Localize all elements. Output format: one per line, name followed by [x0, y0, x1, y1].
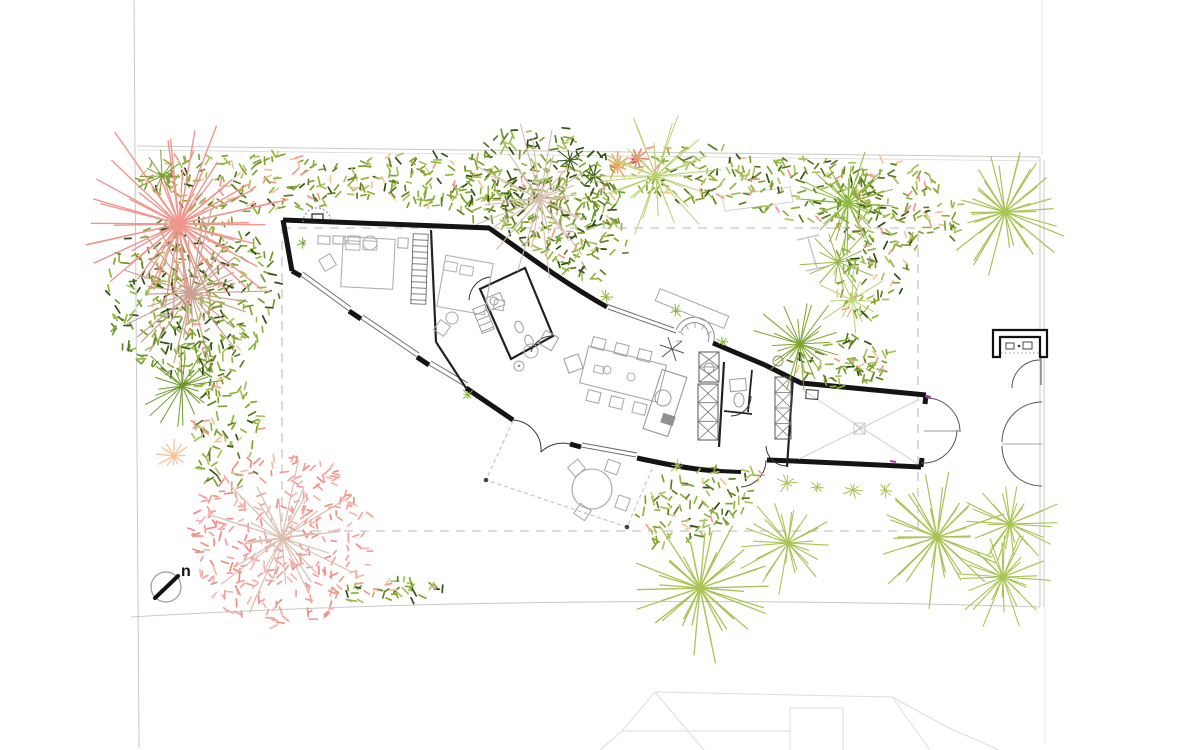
pier-3 [417, 357, 429, 365]
window-slider [581, 443, 637, 457]
sprig-2 [601, 290, 613, 302]
window-bed1b [361, 315, 419, 357]
site-plan-canvas [0, 0, 1200, 750]
terrace-chair-2 [604, 459, 620, 475]
kitchen-sink-bowl [704, 363, 714, 373]
house-north-wall [283, 220, 490, 228]
island-hob [661, 413, 675, 425]
leaf-below-house [636, 465, 764, 549]
pendant-light [773, 356, 783, 366]
sprig-4 [717, 337, 728, 345]
bath-toilet-1 [513, 320, 525, 334]
bath-towel-rack [473, 305, 495, 334]
pier-2 [466, 388, 513, 420]
sprig-9 [880, 483, 891, 497]
terrace-chair-3 [615, 495, 631, 511]
tree-green-tr-2 [800, 231, 873, 291]
garage-cross [799, 389, 918, 464]
wc-toilet [734, 393, 744, 407]
leaf-band-5 [814, 156, 964, 251]
pier-1 [570, 444, 581, 447]
garage-door-arcs [921, 398, 960, 463]
garage-south-wall [794, 461, 921, 467]
dining-chair-6 [632, 402, 647, 416]
sprig-7 [811, 482, 823, 491]
window-north [606, 304, 676, 333]
terrace-chair-4 [574, 503, 592, 520]
stool-round [446, 312, 458, 324]
tree-peach [157, 439, 187, 465]
utility-south-wall [767, 460, 794, 461]
entry-door-arcs [513, 420, 570, 452]
leaf-wedge-right [834, 235, 909, 320]
tree-lightgreen-top [589, 116, 721, 234]
tree-dark-2 [583, 165, 601, 186]
terrace-outline [486, 421, 653, 527]
bedroom-chair [319, 254, 337, 272]
wc-basin [730, 378, 747, 391]
dining-chair-4 [586, 390, 601, 404]
tree-big-topright [956, 153, 1063, 275]
kitchen-island [643, 370, 687, 437]
bed-second-pillow-2 [459, 265, 473, 276]
terrace-chair-1 [568, 459, 586, 477]
house-north-wall-3 [713, 343, 765, 365]
kitchen-counter [698, 384, 718, 440]
leaf-trail-bottom [346, 577, 443, 604]
partition-utility-1 [719, 362, 724, 447]
terrace-posts [484, 478, 630, 530]
shelf-1 [318, 236, 330, 244]
setback-line [282, 228, 918, 531]
bed-master [341, 237, 396, 290]
partition-bedrooms [431, 230, 436, 342]
tree-spider [145, 348, 222, 427]
nightstand-1 [398, 238, 409, 249]
compass-needle [155, 576, 178, 598]
garage-corner-icon [806, 390, 819, 400]
pier-corner [292, 271, 301, 276]
bed-master-pillow-2 [363, 241, 377, 251]
dining-plate-2 [627, 373, 635, 381]
sprig-8 [844, 484, 863, 499]
dining-table [580, 346, 667, 402]
leaf-band-2 [349, 151, 512, 211]
dining-chair-5 [609, 396, 624, 410]
bed-second [437, 255, 493, 315]
tree-bottom-mid [741, 504, 828, 595]
compass-north-label: n [181, 564, 191, 580]
armchair-1 [538, 330, 558, 350]
wardrobe [411, 234, 428, 304]
sprig-plant-indoor [298, 238, 306, 249]
record-player-dot [518, 365, 520, 367]
leaf-band-1 [136, 150, 362, 213]
sprig-1 [463, 390, 472, 398]
south-wall-stub [719, 471, 741, 472]
island-sink [655, 390, 671, 406]
armchair-2 [564, 354, 583, 373]
tree-br-2 [967, 487, 1057, 561]
pedestrian-gate-arc [1012, 360, 1040, 388]
pier-4 [349, 311, 361, 319]
neighbor-roof [600, 692, 999, 750]
kitchen-sink-counter [699, 352, 719, 382]
gate-mailbox [1006, 343, 1014, 349]
garden-lounger [797, 235, 828, 271]
partition-hall [436, 342, 466, 388]
jamb-tick-1 [890, 461, 896, 462]
gate-intercom [1023, 342, 1032, 349]
site-plan-page: n [0, 0, 1200, 750]
bed-second-pillow-1 [443, 261, 457, 272]
window-bed1a [301, 272, 351, 311]
leaf-band-4 [730, 156, 882, 222]
jamb-tick-2 [925, 396, 931, 397]
gate-dot [1018, 345, 1021, 348]
tree-br-1 [884, 473, 1004, 609]
site-boundary-left [134, 0, 139, 748]
sprig-6 [777, 475, 797, 492]
